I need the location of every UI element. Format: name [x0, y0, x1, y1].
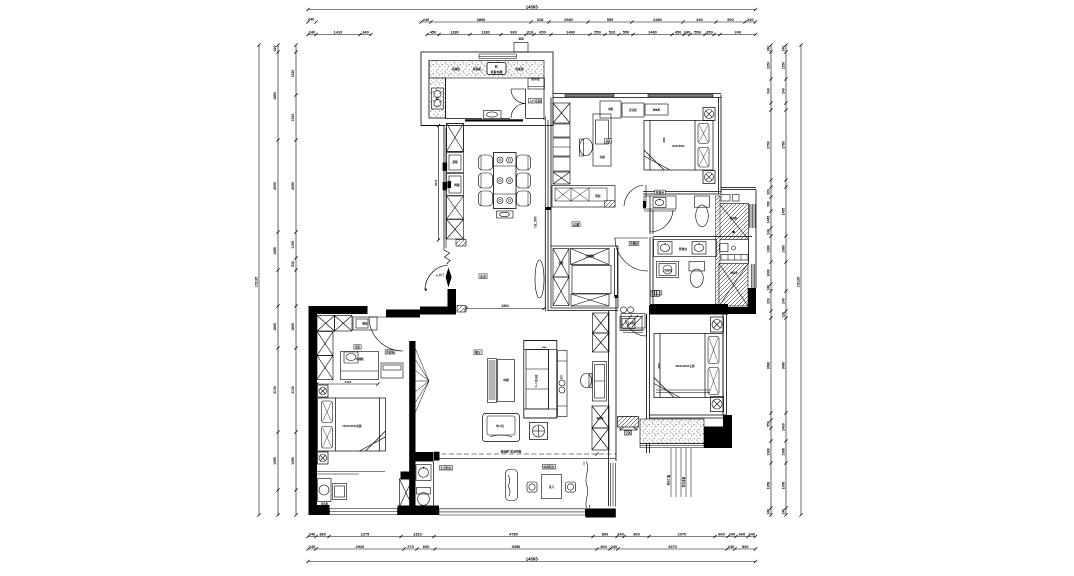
svg-text:洗衣机: 洗衣机	[321, 502, 329, 506]
svg-text:600: 600	[739, 531, 746, 536]
svg-text:550: 550	[766, 421, 770, 427]
svg-text:书房: 书房	[605, 139, 611, 143]
svg-text:1310: 1310	[413, 531, 422, 536]
svg-text:600: 600	[718, 531, 725, 536]
svg-text:2780: 2780	[781, 141, 785, 149]
svg-text:梳妆: 梳妆	[362, 322, 368, 326]
svg-text:茶几: 茶几	[549, 485, 555, 489]
svg-text:淋浴房: 淋浴房	[730, 271, 738, 275]
svg-text:床头柜: 床头柜	[629, 108, 637, 112]
svg-text:单人位: 单人位	[496, 424, 504, 428]
svg-text:240: 240	[766, 509, 770, 515]
svg-text:过道: 过道	[573, 221, 579, 226]
svg-text:次卧: 次卧	[355, 345, 361, 349]
svg-text:1058: 1058	[781, 482, 785, 490]
svg-text:休闲阳台: 休闲阳台	[542, 465, 554, 469]
svg-text:1155: 1155	[291, 241, 295, 249]
svg-text:2000: 2000	[663, 137, 666, 143]
svg-text:1380: 1380	[766, 448, 770, 456]
svg-text:3680: 3680	[781, 362, 785, 370]
svg-text:530: 530	[291, 261, 295, 267]
svg-text:240: 240	[308, 16, 315, 21]
svg-text:1480: 1480	[648, 29, 657, 34]
svg-text:558: 558	[694, 29, 701, 34]
svg-text:240: 240	[781, 46, 785, 52]
svg-text:240: 240	[781, 298, 785, 304]
svg-text:1685: 1685	[273, 247, 277, 255]
svg-text:洗碗机: 洗碗机	[473, 67, 482, 71]
svg-text:555: 555	[607, 17, 614, 22]
svg-text:衣帽间: 衣帽间	[586, 254, 595, 258]
svg-text:1520: 1520	[291, 114, 295, 122]
svg-text:1480: 1480	[566, 29, 575, 34]
svg-text:320: 320	[766, 189, 770, 195]
svg-text:烧水壶: 烧水壶	[530, 77, 540, 81]
svg-text:1388: 1388	[781, 448, 785, 456]
svg-text:318: 318	[527, 29, 534, 34]
svg-text:350: 350	[706, 29, 713, 34]
svg-text:2000: 2000	[658, 363, 661, 369]
svg-text:15135: 15135	[254, 277, 258, 288]
svg-text:240: 240	[766, 285, 770, 291]
svg-text:1150: 1150	[781, 62, 785, 69]
svg-text:书桌: 书桌	[599, 155, 605, 159]
svg-text:240: 240	[684, 29, 691, 34]
svg-text:阿尔门窗: 阿尔门窗	[667, 474, 671, 485]
svg-text:2070: 2070	[678, 531, 687, 536]
svg-text:450: 450	[675, 29, 682, 34]
svg-text:洗漱台: 洗漱台	[679, 247, 688, 251]
svg-text:600: 600	[423, 544, 430, 549]
svg-text:入户花园: 入户花园	[528, 98, 541, 103]
svg-text:4364: 4364	[501, 304, 509, 308]
svg-text:UL.370: UL.370	[534, 216, 538, 227]
svg-text:1090: 1090	[273, 457, 277, 465]
svg-text:五斗柜: 五斗柜	[627, 321, 635, 325]
svg-text:1150: 1150	[766, 62, 770, 69]
svg-text:1058: 1058	[766, 482, 770, 490]
svg-text:边几: 边几	[559, 374, 563, 380]
svg-text:入户门: 入户门	[435, 273, 445, 277]
svg-text:1380: 1380	[766, 245, 770, 253]
svg-text:240: 240	[611, 544, 618, 549]
svg-text:1865: 1865	[291, 323, 295, 331]
svg-text:1180: 1180	[481, 29, 489, 34]
svg-text:3130: 3130	[273, 386, 277, 394]
svg-text:380: 380	[319, 531, 326, 536]
svg-text:240: 240	[766, 46, 770, 52]
svg-text:烤箱: 烤箱	[454, 183, 460, 187]
svg-text:14565: 14565	[526, 4, 539, 9]
svg-text:3680: 3680	[766, 362, 770, 370]
svg-text:240: 240	[766, 88, 770, 94]
svg-text:书柜: 书柜	[608, 107, 614, 111]
svg-text:15120: 15120	[796, 277, 800, 288]
svg-text:铝合金窗: 铝合金窗	[682, 476, 686, 487]
svg-text:3424: 3424	[345, 380, 352, 384]
svg-text:1465: 1465	[766, 216, 770, 224]
svg-text:背景墙: 背景墙	[386, 350, 394, 354]
svg-text:2790: 2790	[766, 141, 770, 149]
svg-text:520: 520	[609, 29, 616, 34]
svg-text:240: 240	[728, 544, 735, 549]
svg-text:1380: 1380	[781, 245, 785, 253]
svg-text:3+人位沙发: 3+人位沙发	[534, 374, 538, 387]
svg-text:3470: 3470	[668, 544, 677, 549]
svg-text:老板电器: 老板电器	[490, 69, 503, 74]
svg-text:1865: 1865	[273, 323, 277, 331]
svg-text:4050: 4050	[273, 182, 277, 190]
svg-text:电视: 电视	[503, 378, 509, 382]
svg-text:电饭煲: 电饭煲	[515, 67, 524, 71]
svg-text:2400: 2400	[781, 423, 785, 431]
svg-text:6070: 6070	[434, 179, 438, 186]
svg-text:1500x2000次卧: 1500x2000次卧	[342, 424, 362, 428]
svg-text:洗衣机: 洗衣机	[664, 268, 672, 272]
svg-text:650: 650	[539, 29, 546, 34]
svg-text:240: 240	[617, 531, 624, 536]
svg-text:3045: 3045	[542, 346, 548, 349]
svg-text:电视柜: 电视柜	[356, 357, 364, 361]
svg-text:淋浴房: 淋浴房	[730, 216, 738, 220]
svg-text:客厅: 客厅	[474, 349, 481, 354]
svg-text:488: 488	[518, 37, 524, 41]
svg-text:318: 318	[537, 17, 544, 22]
svg-text:270: 270	[407, 544, 414, 549]
svg-text:220: 220	[781, 312, 785, 318]
svg-text:2275: 2275	[361, 531, 370, 536]
svg-text:240: 240	[735, 29, 742, 34]
svg-text:2920: 2920	[356, 544, 365, 549]
svg-text:1800x2000主卧: 1800x2000主卧	[675, 364, 695, 368]
svg-text:780: 780	[766, 201, 770, 207]
svg-text:240: 240	[766, 229, 770, 235]
svg-text:400: 400	[600, 544, 607, 549]
svg-text:1520: 1520	[291, 70, 295, 78]
svg-text:240: 240	[309, 544, 316, 549]
svg-text:鞋柜: 鞋柜	[595, 194, 601, 198]
svg-text:240: 240	[749, 531, 756, 536]
svg-text:生活阳台: 生活阳台	[440, 466, 451, 470]
svg-text:玄关: 玄关	[480, 273, 486, 278]
svg-text:衣柜: 衣柜	[558, 261, 564, 265]
svg-text:1410: 1410	[334, 29, 343, 34]
svg-text:240: 240	[781, 88, 785, 94]
svg-text:550: 550	[594, 29, 601, 34]
svg-text:消毒柜: 消毒柜	[451, 67, 461, 71]
svg-text:玻璃移门轨道预留: 玻璃移门轨道预留	[501, 450, 522, 454]
svg-text:收纳柜: 收纳柜	[653, 108, 661, 112]
svg-text:340: 340	[362, 29, 369, 34]
svg-text:450: 450	[430, 29, 437, 34]
svg-text:1090: 1090	[291, 457, 295, 465]
svg-text:4050: 4050	[291, 182, 295, 190]
svg-text:240: 240	[696, 17, 703, 22]
svg-text:餐边柜: 餐边柜	[595, 416, 604, 420]
svg-text:4780: 4780	[509, 531, 518, 536]
svg-text:930: 930	[510, 29, 517, 34]
svg-text:14565: 14565	[526, 556, 539, 561]
svg-text:主卫: 主卫	[655, 291, 661, 295]
svg-text:240: 240	[729, 531, 736, 536]
svg-text:240: 240	[273, 46, 277, 52]
svg-text:240: 240	[309, 29, 316, 34]
svg-text:2680: 2680	[564, 17, 573, 22]
svg-text:蒸箱: 蒸箱	[452, 160, 458, 164]
svg-text:220: 220	[766, 298, 770, 304]
svg-text:800: 800	[633, 531, 640, 536]
svg-text:1465: 1465	[781, 208, 785, 216]
svg-text:灶: 灶	[436, 97, 439, 101]
svg-text:5356: 5356	[512, 544, 521, 549]
svg-text:2480: 2480	[653, 17, 662, 22]
svg-text:3130: 3130	[291, 386, 295, 394]
svg-text:550: 550	[623, 29, 630, 34]
svg-text:3806: 3806	[477, 17, 486, 22]
svg-text:1180: 1180	[450, 29, 458, 34]
svg-text:800: 800	[602, 531, 609, 536]
svg-text:900: 900	[727, 17, 734, 22]
svg-text:1860: 1860	[273, 92, 277, 100]
svg-text:830: 830	[742, 544, 749, 549]
svg-text:240: 240	[747, 17, 754, 22]
svg-text:1500x2000: 1500x2000	[672, 144, 686, 148]
svg-text:衣帽间: 衣帽间	[630, 241, 638, 245]
svg-text:240: 240	[423, 17, 430, 22]
svg-text:240: 240	[781, 509, 785, 515]
svg-text:1060: 1060	[766, 269, 770, 277]
svg-text:空调: 空调	[625, 431, 631, 435]
svg-text:洗漱台: 洗漱台	[656, 190, 665, 194]
svg-text:240: 240	[309, 531, 316, 536]
